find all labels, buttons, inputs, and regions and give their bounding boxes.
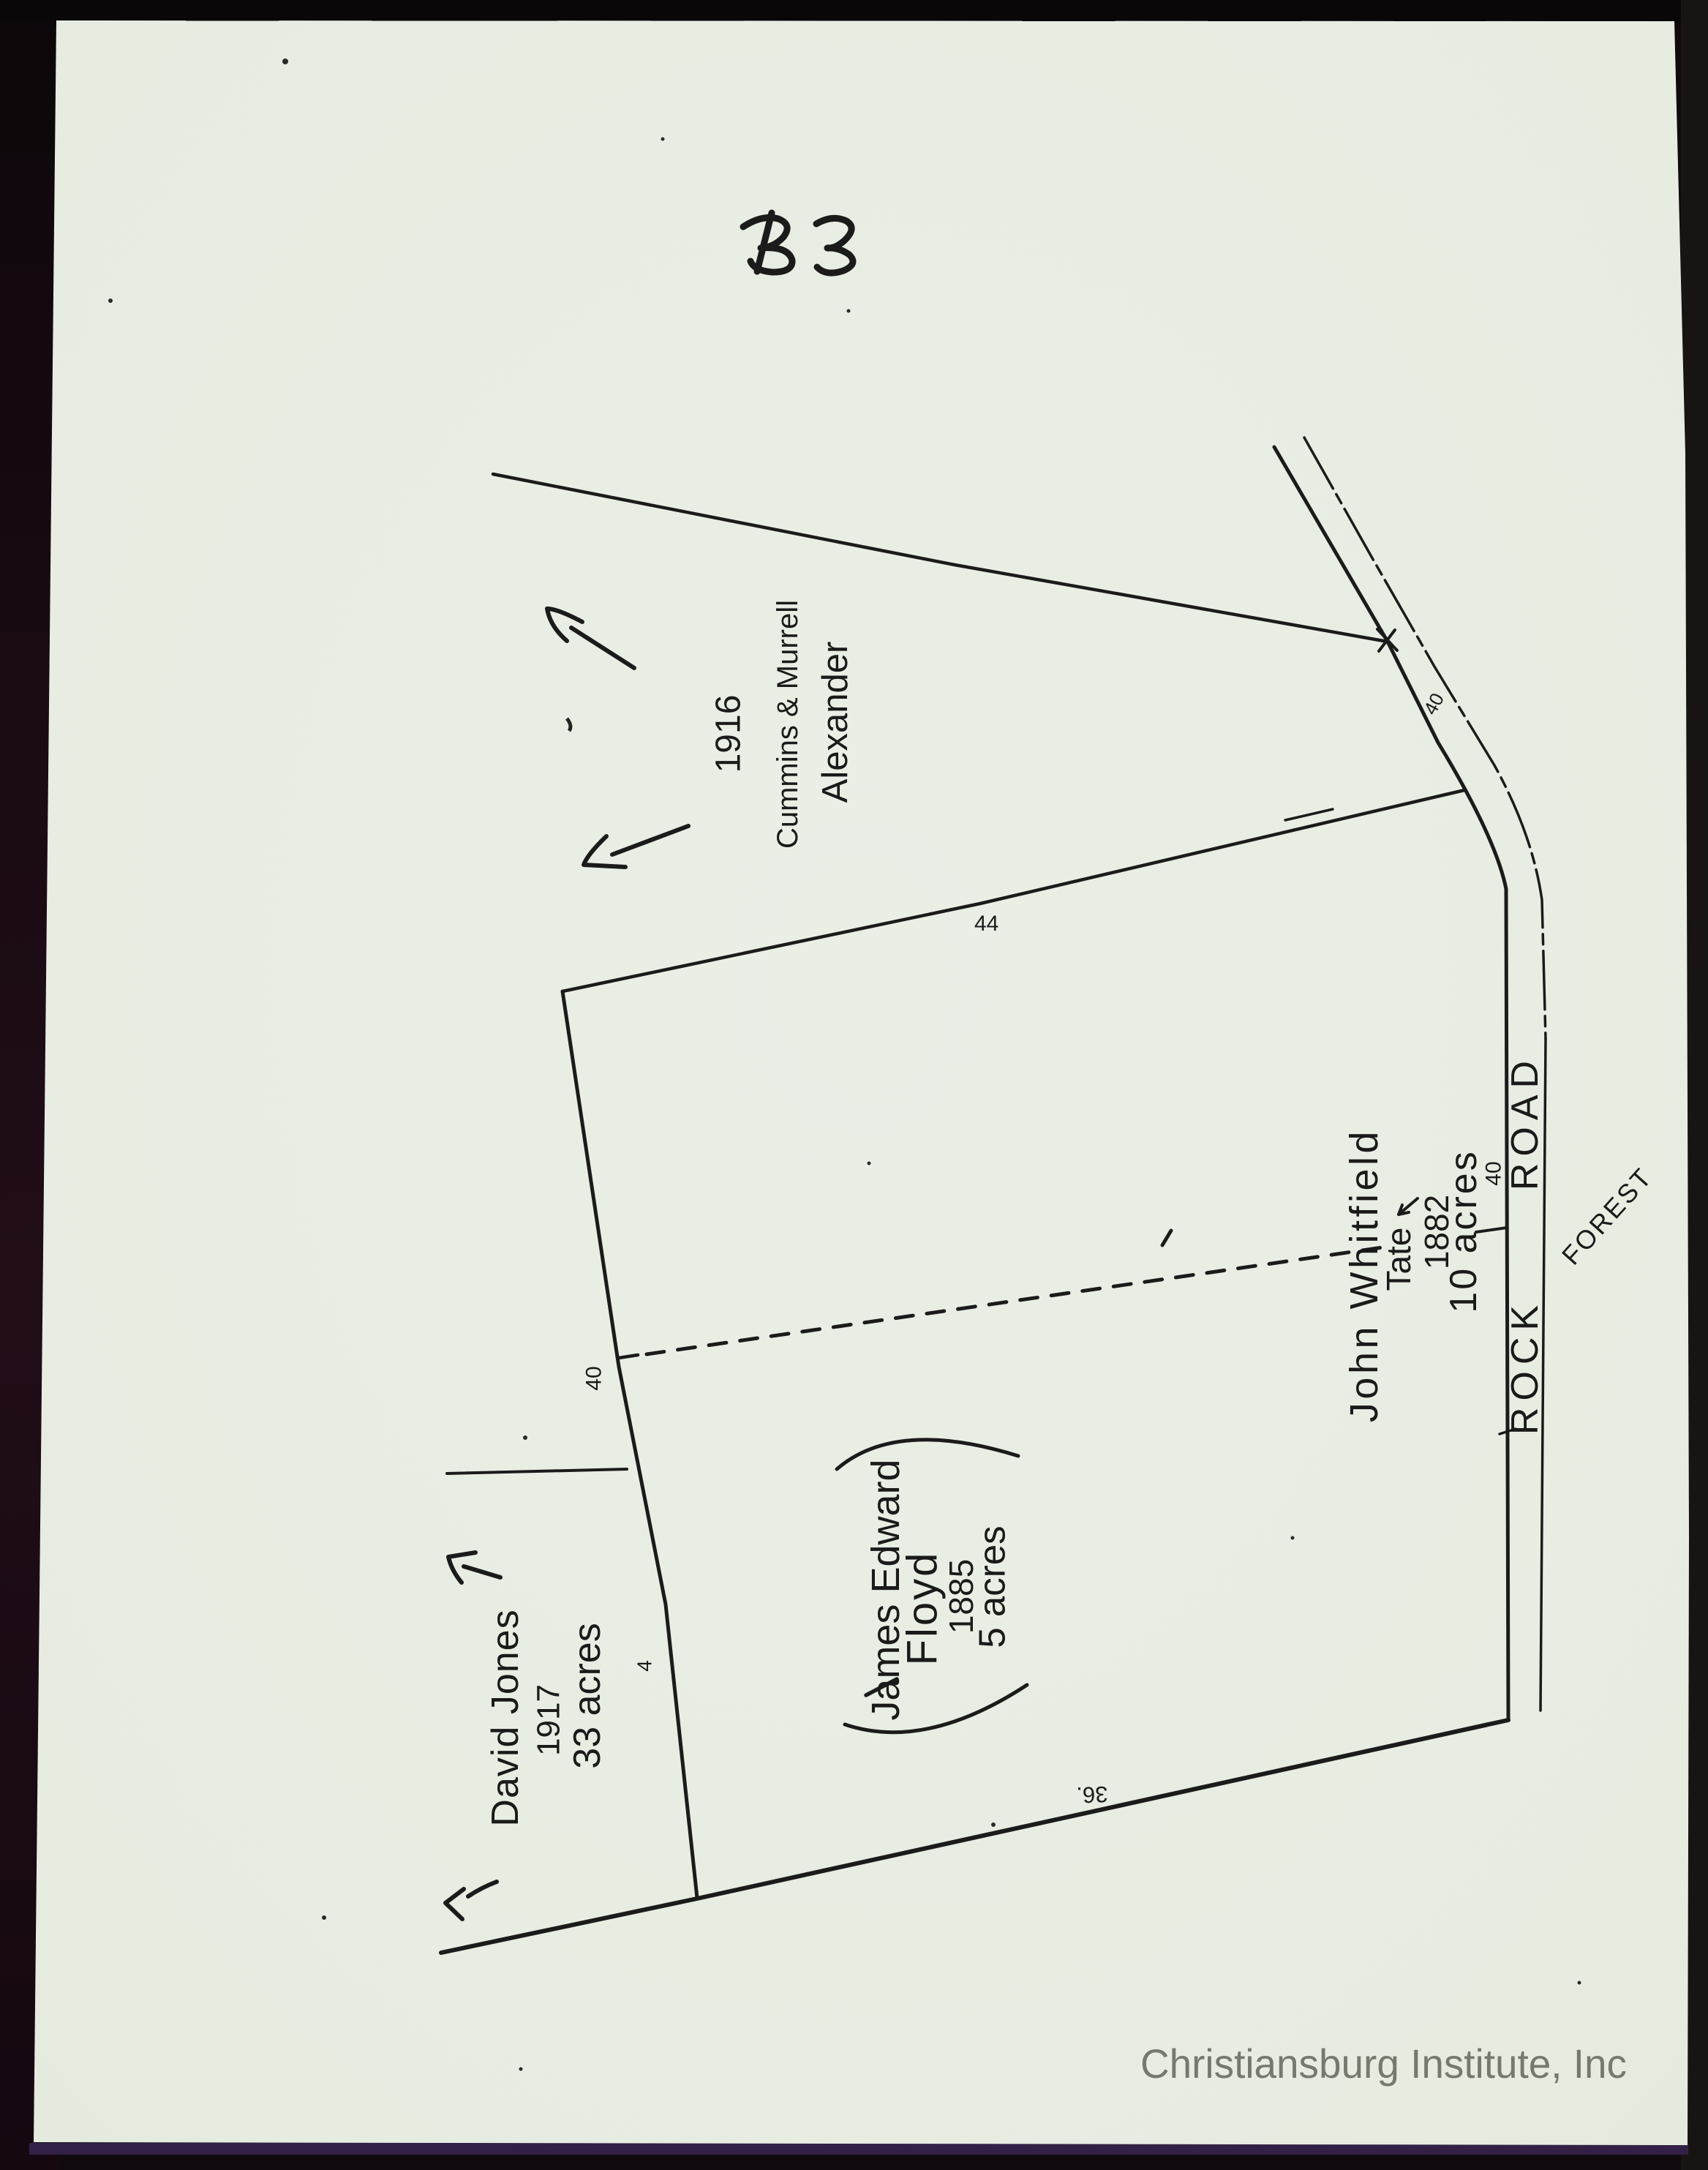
svg-text:10 acres: 10 acres <box>1442 1149 1485 1313</box>
svg-text:40: 40 <box>1482 1161 1506 1185</box>
svg-text:33 acres: 33 acres <box>566 1623 609 1768</box>
svg-text:36.: 36. <box>1076 1782 1108 1808</box>
svg-text:1916: 1916 <box>710 695 748 773</box>
svg-text:Floyd: Floyd <box>899 1551 947 1666</box>
svg-text:40: 40 <box>582 1366 606 1390</box>
svg-text:Christiansburg Institute, Inc: Christiansburg Institute, Inc <box>1140 2041 1627 2087</box>
svg-text:ROAD: ROAD <box>1504 1054 1546 1190</box>
svg-text:Tate: Tate <box>1380 1228 1418 1291</box>
svg-text:44: 44 <box>974 912 998 936</box>
svg-text:Alexander: Alexander <box>816 642 855 803</box>
svg-text:5 acres: 5 acres <box>971 1525 1013 1648</box>
svg-text:4: 4 <box>633 1660 656 1672</box>
svg-text:1917: 1917 <box>531 1684 567 1756</box>
svg-text:David Jones: David Jones <box>484 1609 527 1826</box>
svg-text:Cummins & Murrell: Cummins & Murrell <box>772 600 804 849</box>
svg-text:ROCK: ROCK <box>1504 1299 1546 1435</box>
